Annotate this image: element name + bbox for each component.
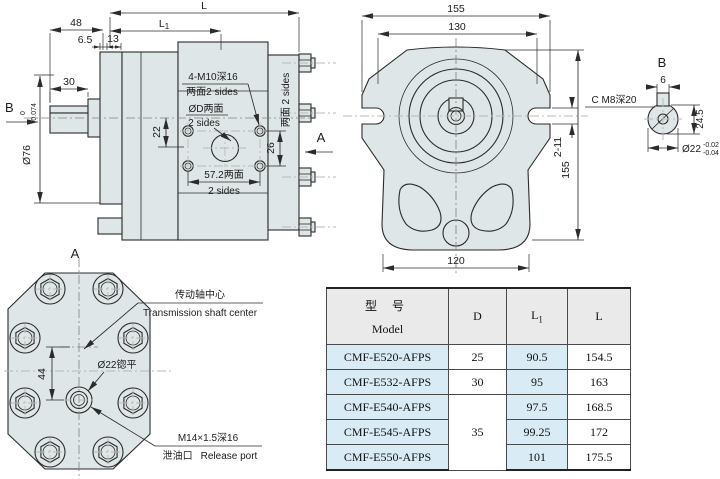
- view-a-label: A: [71, 246, 80, 261]
- cell-l1: 97.5: [507, 395, 568, 420]
- rear-cover-bolts: [299, 54, 315, 236]
- pump-drawing-sheet: L L1 48 6.5 13 30 Ø76: [0, 0, 720, 479]
- cell-d-merged: 35: [449, 395, 507, 471]
- table-row: CMF-E520-AFPS 25 90.5 154.5: [327, 345, 631, 370]
- note-port-label: 泄油口Release port: [163, 449, 258, 462]
- table-row: CMF-E540-AFPS 35 97.5 168.5: [327, 395, 631, 420]
- dim-o76-tol-upper: 0: [20, 111, 27, 115]
- cell-d: 30: [449, 370, 507, 395]
- table-row: CMF-E532-AFPS 30 95 163: [327, 370, 631, 395]
- note-port-line2: 2 sides: [188, 118, 220, 129]
- cell-l: 172: [568, 420, 631, 445]
- dim-30: 30: [50, 76, 88, 103]
- cell-l: 154.5: [568, 345, 631, 370]
- detail-b-drawing: B C M8深20 6 24.5 Ø22 -0.0: [585, 45, 720, 180]
- cell-l: 168.5: [568, 395, 631, 420]
- front-view-drawing: 155 130 2-11 155 120: [340, 0, 592, 282]
- header-model-cn: 型 号: [327, 297, 448, 314]
- cell-l1: 95: [507, 370, 568, 395]
- note-two-sides-vertical: 两面 2 sides: [281, 73, 292, 127]
- dim-26-text: 26: [265, 142, 277, 154]
- note-tap-m8: C M8深20: [585, 94, 655, 107]
- dim-6.5-13: 6.5 13: [78, 33, 121, 50]
- header-model: 型 号 Model: [327, 288, 449, 345]
- header-model-en: Model: [327, 322, 448, 337]
- side-view-drawing: L L1 48 6.5 13 30 Ø76: [0, 0, 345, 252]
- dim-13-text: 13: [107, 33, 119, 45]
- dim-key-6: 6: [648, 75, 678, 93]
- cell-model: CMF-E540-AFPS: [327, 395, 449, 420]
- dim-155-right-text: 155: [560, 161, 572, 179]
- cell-l1: 101: [507, 445, 568, 471]
- dim-slots-2-11: 2-11: [552, 98, 578, 157]
- note-port-thread: M14×1.5深16: [178, 432, 239, 444]
- cell-l1: 90.5: [507, 345, 568, 370]
- header-l1: L1: [507, 288, 568, 345]
- note-m10-line1: 4-M10深16: [188, 71, 238, 83]
- dim-o22-tol-lower: -0.04: [703, 150, 719, 157]
- note-spotface-text: Ø22锪平: [98, 358, 137, 371]
- note-tap-text: C M8深20: [591, 94, 636, 106]
- cell-model: CMF-E545-AFPS: [327, 420, 449, 445]
- header-d: D: [449, 288, 507, 345]
- view-a-drawing: A 44 Ø22锪平: [0, 245, 330, 479]
- header-l: L: [568, 288, 631, 345]
- dim-155-top-text: 155: [447, 3, 465, 15]
- cell-l: 175.5: [568, 445, 631, 471]
- dim-6-text: 6: [660, 75, 666, 86]
- dim-57-text2: 2 sides: [208, 186, 240, 197]
- cell-model: CMF-E532-AFPS: [327, 370, 449, 395]
- dim-48-text: 48: [70, 17, 82, 29]
- dim-44-text: 44: [36, 368, 48, 380]
- cell-model: CMF-E550-AFPS: [327, 445, 449, 471]
- dim-120: 120: [383, 254, 529, 272]
- dim-o22-tol-upper: -0.02: [703, 142, 719, 149]
- dim-slots-text: 2-11: [552, 137, 564, 157]
- dim-24-5-text: 24.5: [695, 109, 706, 129]
- note-shaft-en: Transmission shaft center: [143, 308, 258, 319]
- dim-6.5-text: 6.5: [78, 34, 93, 46]
- dim-L1-text: L1: [159, 18, 170, 31]
- note-m10-line2: 两面2 sides: [186, 87, 238, 98]
- view-label-b: B: [5, 100, 14, 115]
- detail-b-label: B: [658, 55, 667, 70]
- cell-d: 25: [449, 345, 507, 370]
- view-arrow-a: A: [305, 130, 333, 152]
- cell-model: CMF-E520-AFPS: [327, 345, 449, 370]
- cell-l1: 99.25: [507, 420, 568, 445]
- dim-o22-text: Ø22: [682, 144, 701, 155]
- dim-120-text: 120: [447, 255, 465, 267]
- pump-body-side: [50, 42, 299, 240]
- dim-130-text: 130: [448, 21, 466, 33]
- dim-30-text: 30: [63, 76, 75, 88]
- dim-22-text: 22: [151, 126, 163, 138]
- note-shaft-cn: 传动轴中心: [175, 288, 225, 301]
- dim-o76-text: Ø76: [21, 145, 33, 165]
- note-port-line1: ØD两面: [189, 104, 224, 115]
- table-header-row: 型 号 Model D L1 L: [327, 288, 631, 345]
- dim-o76-tol-lower: -0.074: [31, 103, 38, 123]
- spec-table: 型 号 Model D L1 L CMF-E520-AFPS 25 90.5 1…: [326, 287, 631, 471]
- cell-l: 163: [568, 370, 631, 395]
- view-label-a: A: [317, 130, 326, 145]
- dim-L-text: L: [201, 0, 207, 12]
- dim-57-text: 57.2两面: [204, 170, 243, 181]
- shaft-end-section: [644, 93, 682, 140]
